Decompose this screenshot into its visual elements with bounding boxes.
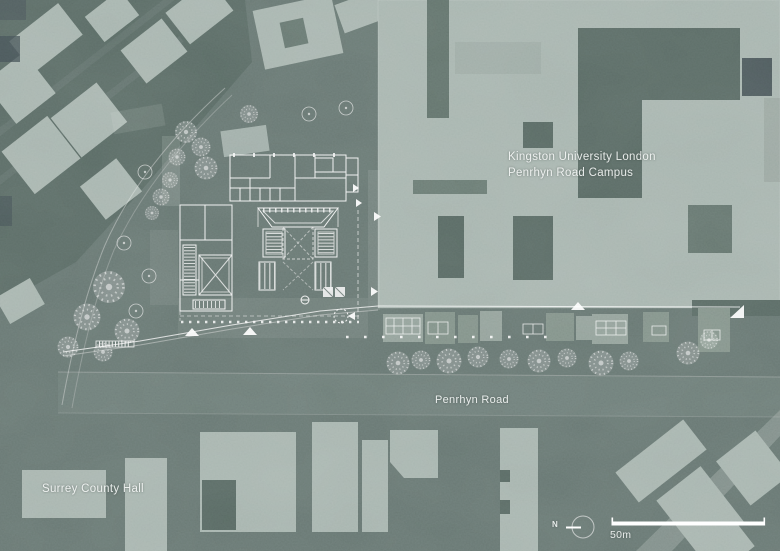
scale-bar-label: 50m xyxy=(610,529,631,541)
campus-label-line2: Penrhyn Road Campus xyxy=(508,165,656,181)
site-plan: Kingston University London Penrhyn Road … xyxy=(0,0,780,551)
site-plan-graphic xyxy=(0,0,780,551)
grain-overlay xyxy=(0,0,780,551)
campus-label: Kingston University London Penrhyn Road … xyxy=(508,149,656,181)
campus-label-line1: Kingston University London xyxy=(508,149,656,165)
compass-label: N xyxy=(552,520,558,529)
building-label: Surrey County Hall xyxy=(42,483,144,495)
road-label: Penrhyn Road xyxy=(435,394,509,406)
